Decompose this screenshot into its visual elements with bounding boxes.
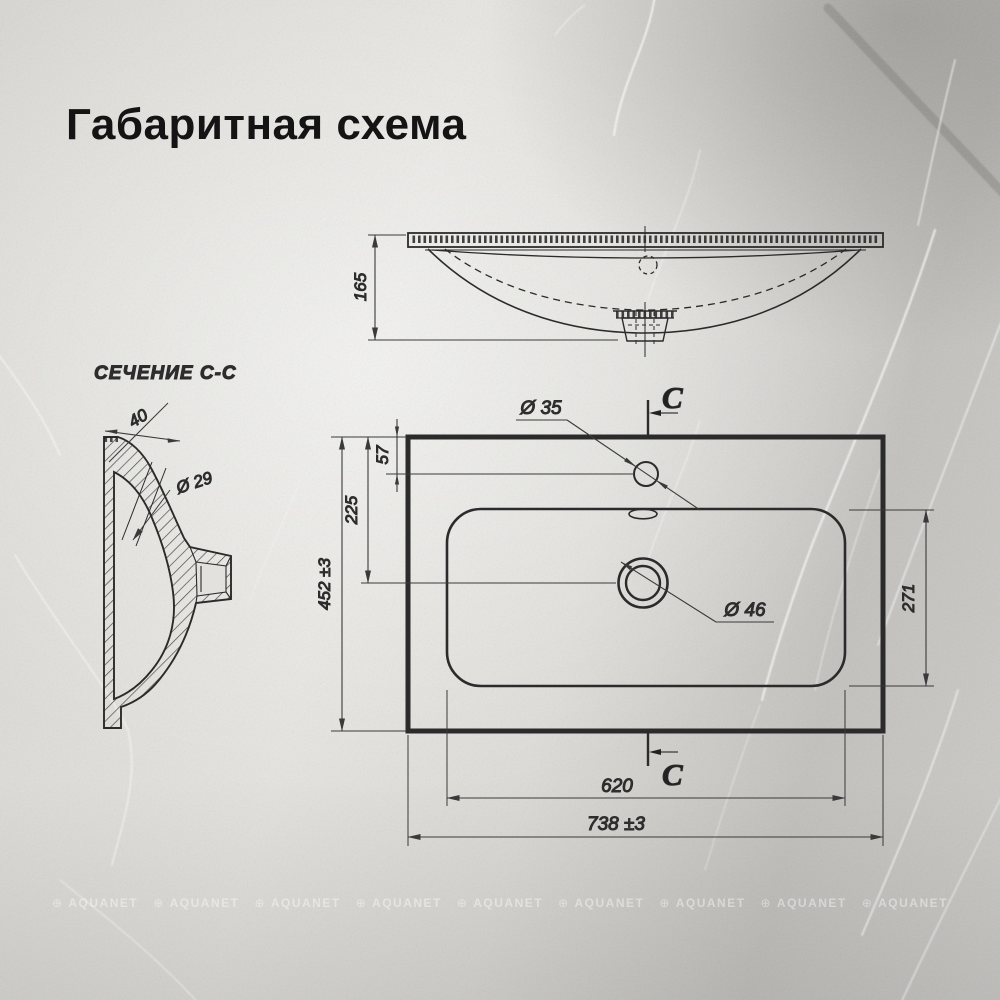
dim-front-height: 165	[351, 272, 370, 301]
dim-bowl-depth: 271	[899, 584, 918, 613]
watermark: AQUANET	[558, 896, 644, 910]
front-faucet-hole-hidden	[639, 256, 657, 274]
bowl-width-dimension	[447, 690, 845, 806]
section-marker-bottom: C	[648, 731, 683, 792]
dim-bowl-width: 620	[601, 776, 633, 797]
top-overflow-hole	[629, 509, 657, 519]
watermark: AQUANET	[862, 896, 948, 910]
watermark: AQUANET	[153, 896, 239, 910]
watermark-row: AQUANET AQUANET AQUANET AQUANET AQUANET …	[0, 896, 1000, 910]
drawing-sheet: Габаритная схема	[0, 0, 1000, 1000]
technical-drawing: 165 СЕЧЕНИЕ С-С 40	[0, 0, 1000, 1000]
section-marker-bottom-label: C	[662, 757, 683, 792]
dim-drain-diameter: Ø 46	[723, 600, 766, 621]
watermark: AQUANET	[52, 896, 138, 910]
section-marker-top: C	[648, 380, 683, 437]
front-drain-assembly	[613, 302, 677, 357]
faucet-offset-dimension	[395, 419, 399, 492]
section-view-label: СЕЧЕНИЕ С-С	[94, 363, 237, 384]
dim-section-rim-width: 40	[125, 405, 151, 431]
front-height-dimension	[368, 235, 618, 340]
section-view: СЕЧЕНИЕ С-С 40 Ø 29	[94, 363, 237, 728]
dim-faucet-offset: 57	[373, 445, 392, 464]
top-bowl-outline	[447, 509, 845, 686]
dim-depth: 452 ±3	[315, 558, 334, 610]
bowl-depth-dimension	[849, 510, 934, 686]
watermark: AQUANET	[457, 896, 543, 910]
dim-width: 738 ±3	[587, 814, 645, 835]
watermark: AQUANET	[356, 896, 442, 910]
watermark: AQUANET	[761, 896, 847, 910]
top-plan-view: Ø 35 Ø 46 C C	[315, 380, 934, 846]
dim-drain-offset: 225	[342, 495, 361, 525]
dim-section-overflow-diameter: Ø 29	[173, 468, 215, 498]
dim-faucet-diameter: Ø 35	[519, 398, 562, 419]
watermark: AQUANET	[254, 896, 340, 910]
watermark: AQUANET	[659, 896, 745, 910]
section-marker-top-label: C	[662, 380, 683, 415]
front-elevation-view: 165	[351, 226, 883, 357]
width-dimension	[408, 735, 883, 846]
faucet-diameter-leader	[516, 420, 700, 510]
